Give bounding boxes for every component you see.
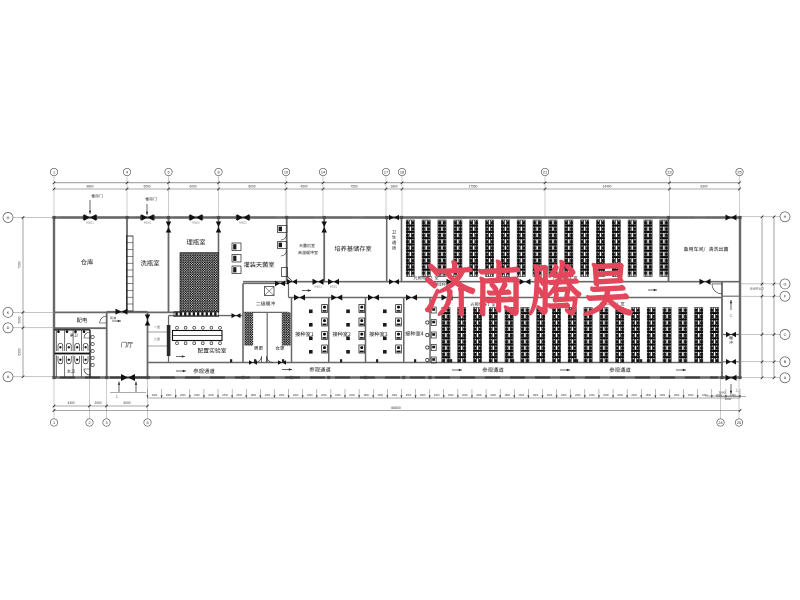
svg-text:3: 3 [105,421,107,425]
svg-text:5: 5 [146,421,148,425]
svg-text:K: K [7,311,10,315]
svg-text:D: D [7,326,10,330]
svg-text:2000: 2000 [208,394,214,397]
svg-text:23: 23 [667,170,671,174]
svg-text:18: 18 [400,170,404,174]
svg-text:M1021: M1021 [86,222,94,225]
svg-text:1800: 1800 [533,394,539,397]
svg-text:21: 21 [543,170,547,174]
svg-text:2000: 2000 [406,394,412,397]
svg-text:24: 24 [718,421,722,425]
svg-text:H: H [7,216,10,220]
svg-text:M1021: M1021 [314,286,322,289]
svg-text:17550: 17550 [469,185,478,189]
svg-text:2000: 2000 [265,394,271,397]
svg-text:2000: 2000 [236,394,242,397]
svg-text:1800: 1800 [390,185,397,189]
svg-text:1800: 1800 [194,394,200,397]
svg-text:1800: 1800 [561,394,567,397]
svg-text:6000: 6000 [189,185,196,189]
svg-text:1800: 1800 [646,394,652,397]
svg-text:8000: 8000 [248,185,255,189]
svg-text:4300: 4300 [67,401,74,405]
svg-text:8300: 8300 [700,185,707,189]
svg-text:2000: 2000 [321,394,327,397]
svg-text:1: 1 [53,170,55,174]
svg-text:1800: 1800 [674,394,680,397]
svg-text:10: 10 [284,170,288,174]
svg-text:M1021: M1021 [144,222,152,225]
svg-text:2000: 2000 [688,394,694,397]
svg-text:1800: 1800 [307,394,313,397]
svg-text:1800: 1800 [589,394,595,397]
svg-text:A: A [784,376,787,380]
svg-text:1800: 1800 [251,394,257,397]
svg-text:2000: 2000 [293,394,299,397]
svg-text:8: 8 [217,170,219,174]
svg-text:2000: 2000 [631,394,637,397]
svg-text:2000: 2000 [519,394,525,397]
svg-text:1800: 1800 [166,394,172,397]
svg-text:2000: 2000 [462,394,468,397]
svg-text:2000: 2000 [94,401,101,405]
svg-text:2000: 2000 [547,394,553,397]
svg-text:M1021: M1021 [192,222,200,225]
svg-text:2000: 2000 [603,394,609,397]
svg-text:M1021: M1021 [330,286,338,289]
svg-text:1800: 1800 [222,394,228,397]
svg-text:2000: 2000 [434,394,440,397]
svg-text:7500: 7500 [350,185,357,189]
svg-text:25: 25 [737,421,741,425]
svg-text:7200: 7200 [18,261,22,268]
svg-text:1800: 1800 [363,394,369,397]
svg-text:5000: 5000 [143,185,150,189]
svg-text:C: C [784,333,787,337]
svg-text:25: 25 [737,170,741,174]
svg-text:H: H [784,215,787,219]
svg-text:4500: 4500 [300,185,307,189]
svg-text:G: G [784,282,787,286]
svg-text:2000: 2000 [490,394,496,397]
svg-text:5000: 5000 [123,401,130,405]
svg-text:5000: 5000 [18,316,22,323]
svg-text:1800: 1800 [617,394,623,397]
svg-text:M1021: M1021 [239,222,247,225]
svg-text:2000: 2000 [575,394,581,397]
svg-text:2000: 2000 [152,394,158,397]
svg-text:6300: 6300 [18,348,22,355]
svg-text:1800: 1800 [279,394,285,397]
svg-text:14: 14 [321,170,325,174]
svg-text:66800: 66800 [391,406,401,410]
svg-text:A: A [7,375,10,379]
svg-text:2000: 2000 [349,394,355,397]
svg-text:1800: 1800 [448,394,454,397]
svg-text:14400: 14400 [603,185,612,189]
svg-text:1800: 1800 [392,394,398,397]
svg-text:2000: 2000 [377,394,383,397]
svg-text:2000: 2000 [180,394,186,397]
svg-text:2000: 2000 [660,394,666,397]
svg-text:1800: 1800 [420,394,426,397]
svg-text:4: 4 [126,170,128,174]
svg-text:1: 1 [53,421,55,425]
svg-text:6: 6 [167,170,169,174]
svg-text:B: B [784,360,787,364]
svg-text:17: 17 [384,170,388,174]
svg-text:1800: 1800 [335,394,341,397]
svg-text:1800: 1800 [702,394,708,397]
svg-text:1800: 1800 [504,394,510,397]
svg-text:9800: 9800 [86,185,93,189]
svg-text:2: 2 [88,421,90,425]
svg-text:1800: 1800 [476,394,482,397]
